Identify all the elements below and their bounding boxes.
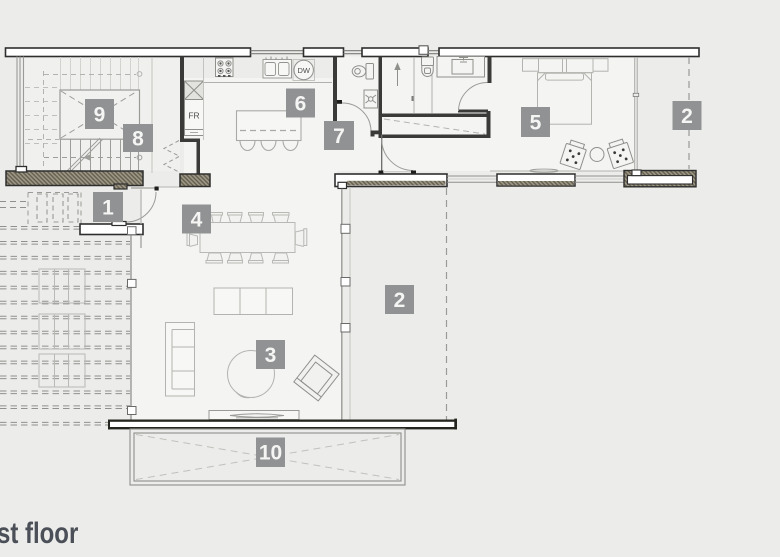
svg-text:st floor: st floor bbox=[0, 515, 79, 549]
svg-text:8: 8 bbox=[132, 128, 144, 151]
svg-text:DW: DW bbox=[297, 66, 310, 75]
svg-text:7: 7 bbox=[333, 125, 345, 148]
svg-text:2: 2 bbox=[681, 105, 693, 128]
svg-text:2: 2 bbox=[394, 289, 406, 312]
svg-text:10: 10 bbox=[259, 442, 282, 465]
svg-text:5: 5 bbox=[530, 112, 542, 135]
svg-text:3: 3 bbox=[265, 344, 277, 367]
svg-text:6: 6 bbox=[295, 93, 307, 116]
svg-text:FR: FR bbox=[188, 111, 199, 121]
svg-text:9: 9 bbox=[94, 104, 106, 127]
svg-text:4: 4 bbox=[191, 209, 203, 232]
svg-text:1: 1 bbox=[102, 197, 114, 220]
